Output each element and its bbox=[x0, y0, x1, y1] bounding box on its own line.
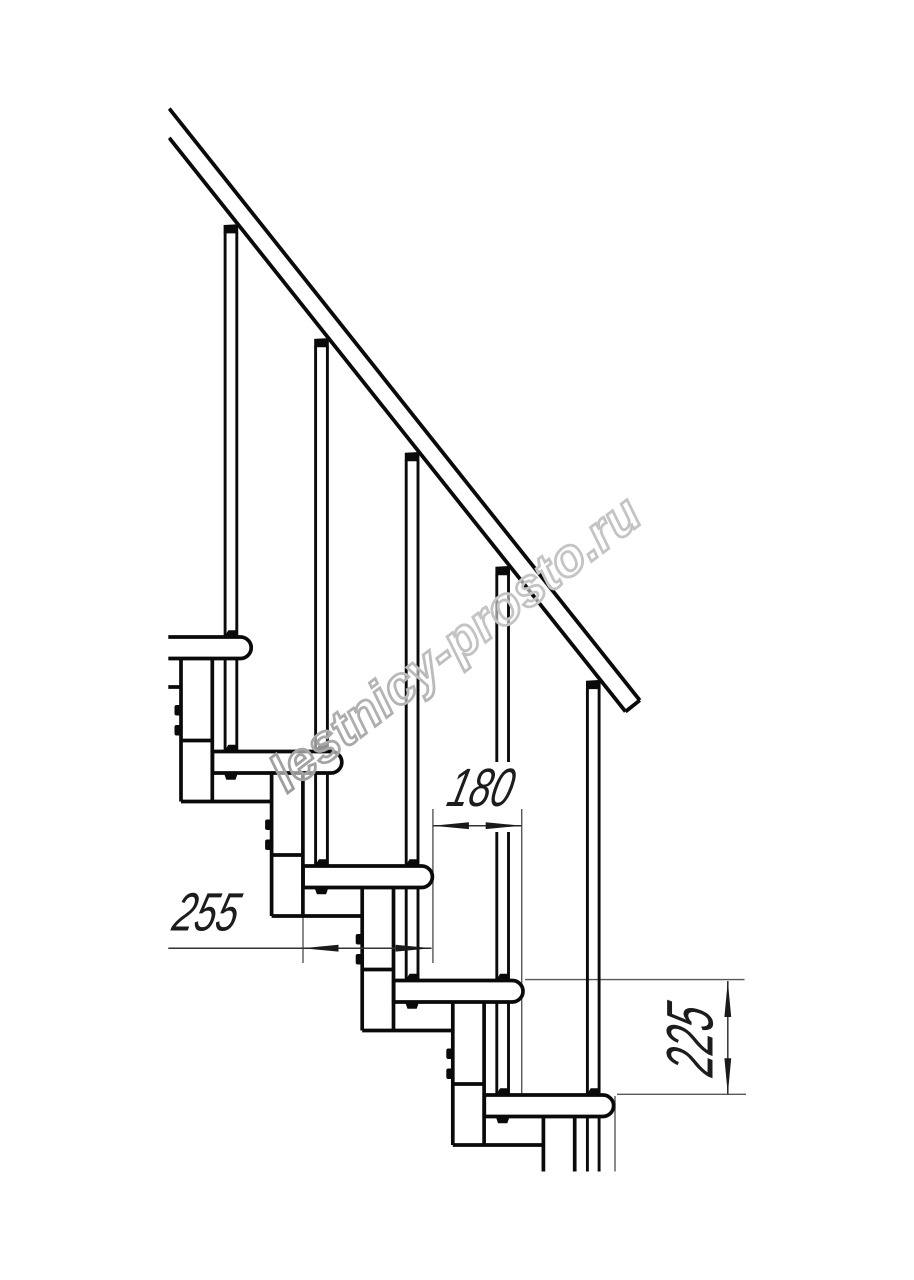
svg-text:255: 255 bbox=[167, 883, 247, 943]
svg-text:225: 225 bbox=[652, 995, 726, 1082]
